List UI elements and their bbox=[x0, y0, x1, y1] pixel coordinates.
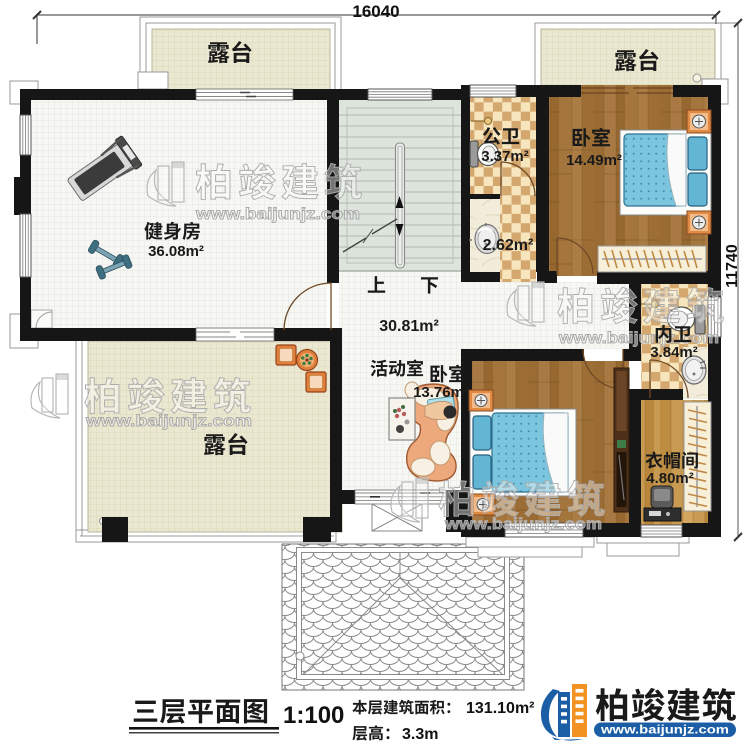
svg-text:www.baijunjz.com: www.baijunjz.com bbox=[195, 206, 360, 223]
svg-text:www.baijunjz.com: www.baijunjz.com bbox=[600, 723, 729, 737]
svg-text:13.76m²: 13.76m² bbox=[413, 384, 469, 401]
svg-text:3.84m²: 3.84m² bbox=[650, 344, 698, 361]
svg-text:11740: 11740 bbox=[724, 244, 741, 288]
svg-text:30.81m²: 30.81m² bbox=[379, 318, 439, 335]
svg-text:3.37m²: 3.37m² bbox=[481, 148, 529, 165]
svg-text:14.49m²: 14.49m² bbox=[566, 152, 622, 169]
svg-text:131.10m²: 131.10m² bbox=[466, 700, 535, 717]
svg-text:www.baijunjz.com: www.baijunjz.com bbox=[444, 516, 602, 533]
svg-text:2.62m²: 2.62m² bbox=[483, 237, 534, 254]
svg-text:36.08m²: 36.08m² bbox=[148, 243, 204, 260]
svg-text:16040: 16040 bbox=[352, 2, 399, 21]
svg-text:3.3m: 3.3m bbox=[402, 726, 438, 743]
svg-text:4.80m²: 4.80m² bbox=[646, 470, 694, 487]
svg-text:www.baijunjz.com: www.baijunjz.com bbox=[85, 413, 252, 430]
svg-text:1:100: 1:100 bbox=[283, 702, 344, 729]
